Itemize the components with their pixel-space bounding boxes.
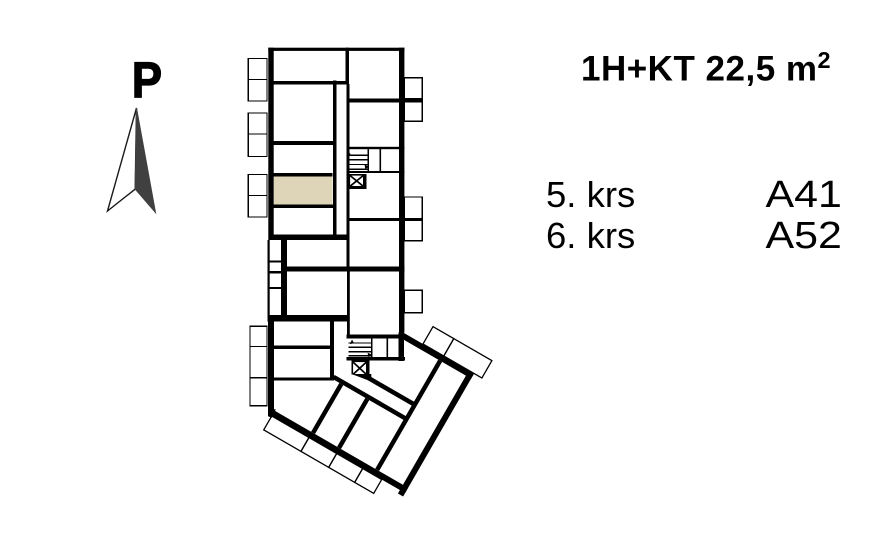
svg-text:A41: A41	[765, 173, 841, 216]
svg-text:1H+KT 22,5 m2: 1H+KT 22,5 m2	[581, 47, 831, 89]
svg-text:A52: A52	[765, 213, 841, 256]
svg-text:5. krs: 5. krs	[546, 174, 635, 215]
svg-text:6. krs: 6. krs	[546, 215, 635, 256]
svg-text:P: P	[132, 53, 162, 108]
